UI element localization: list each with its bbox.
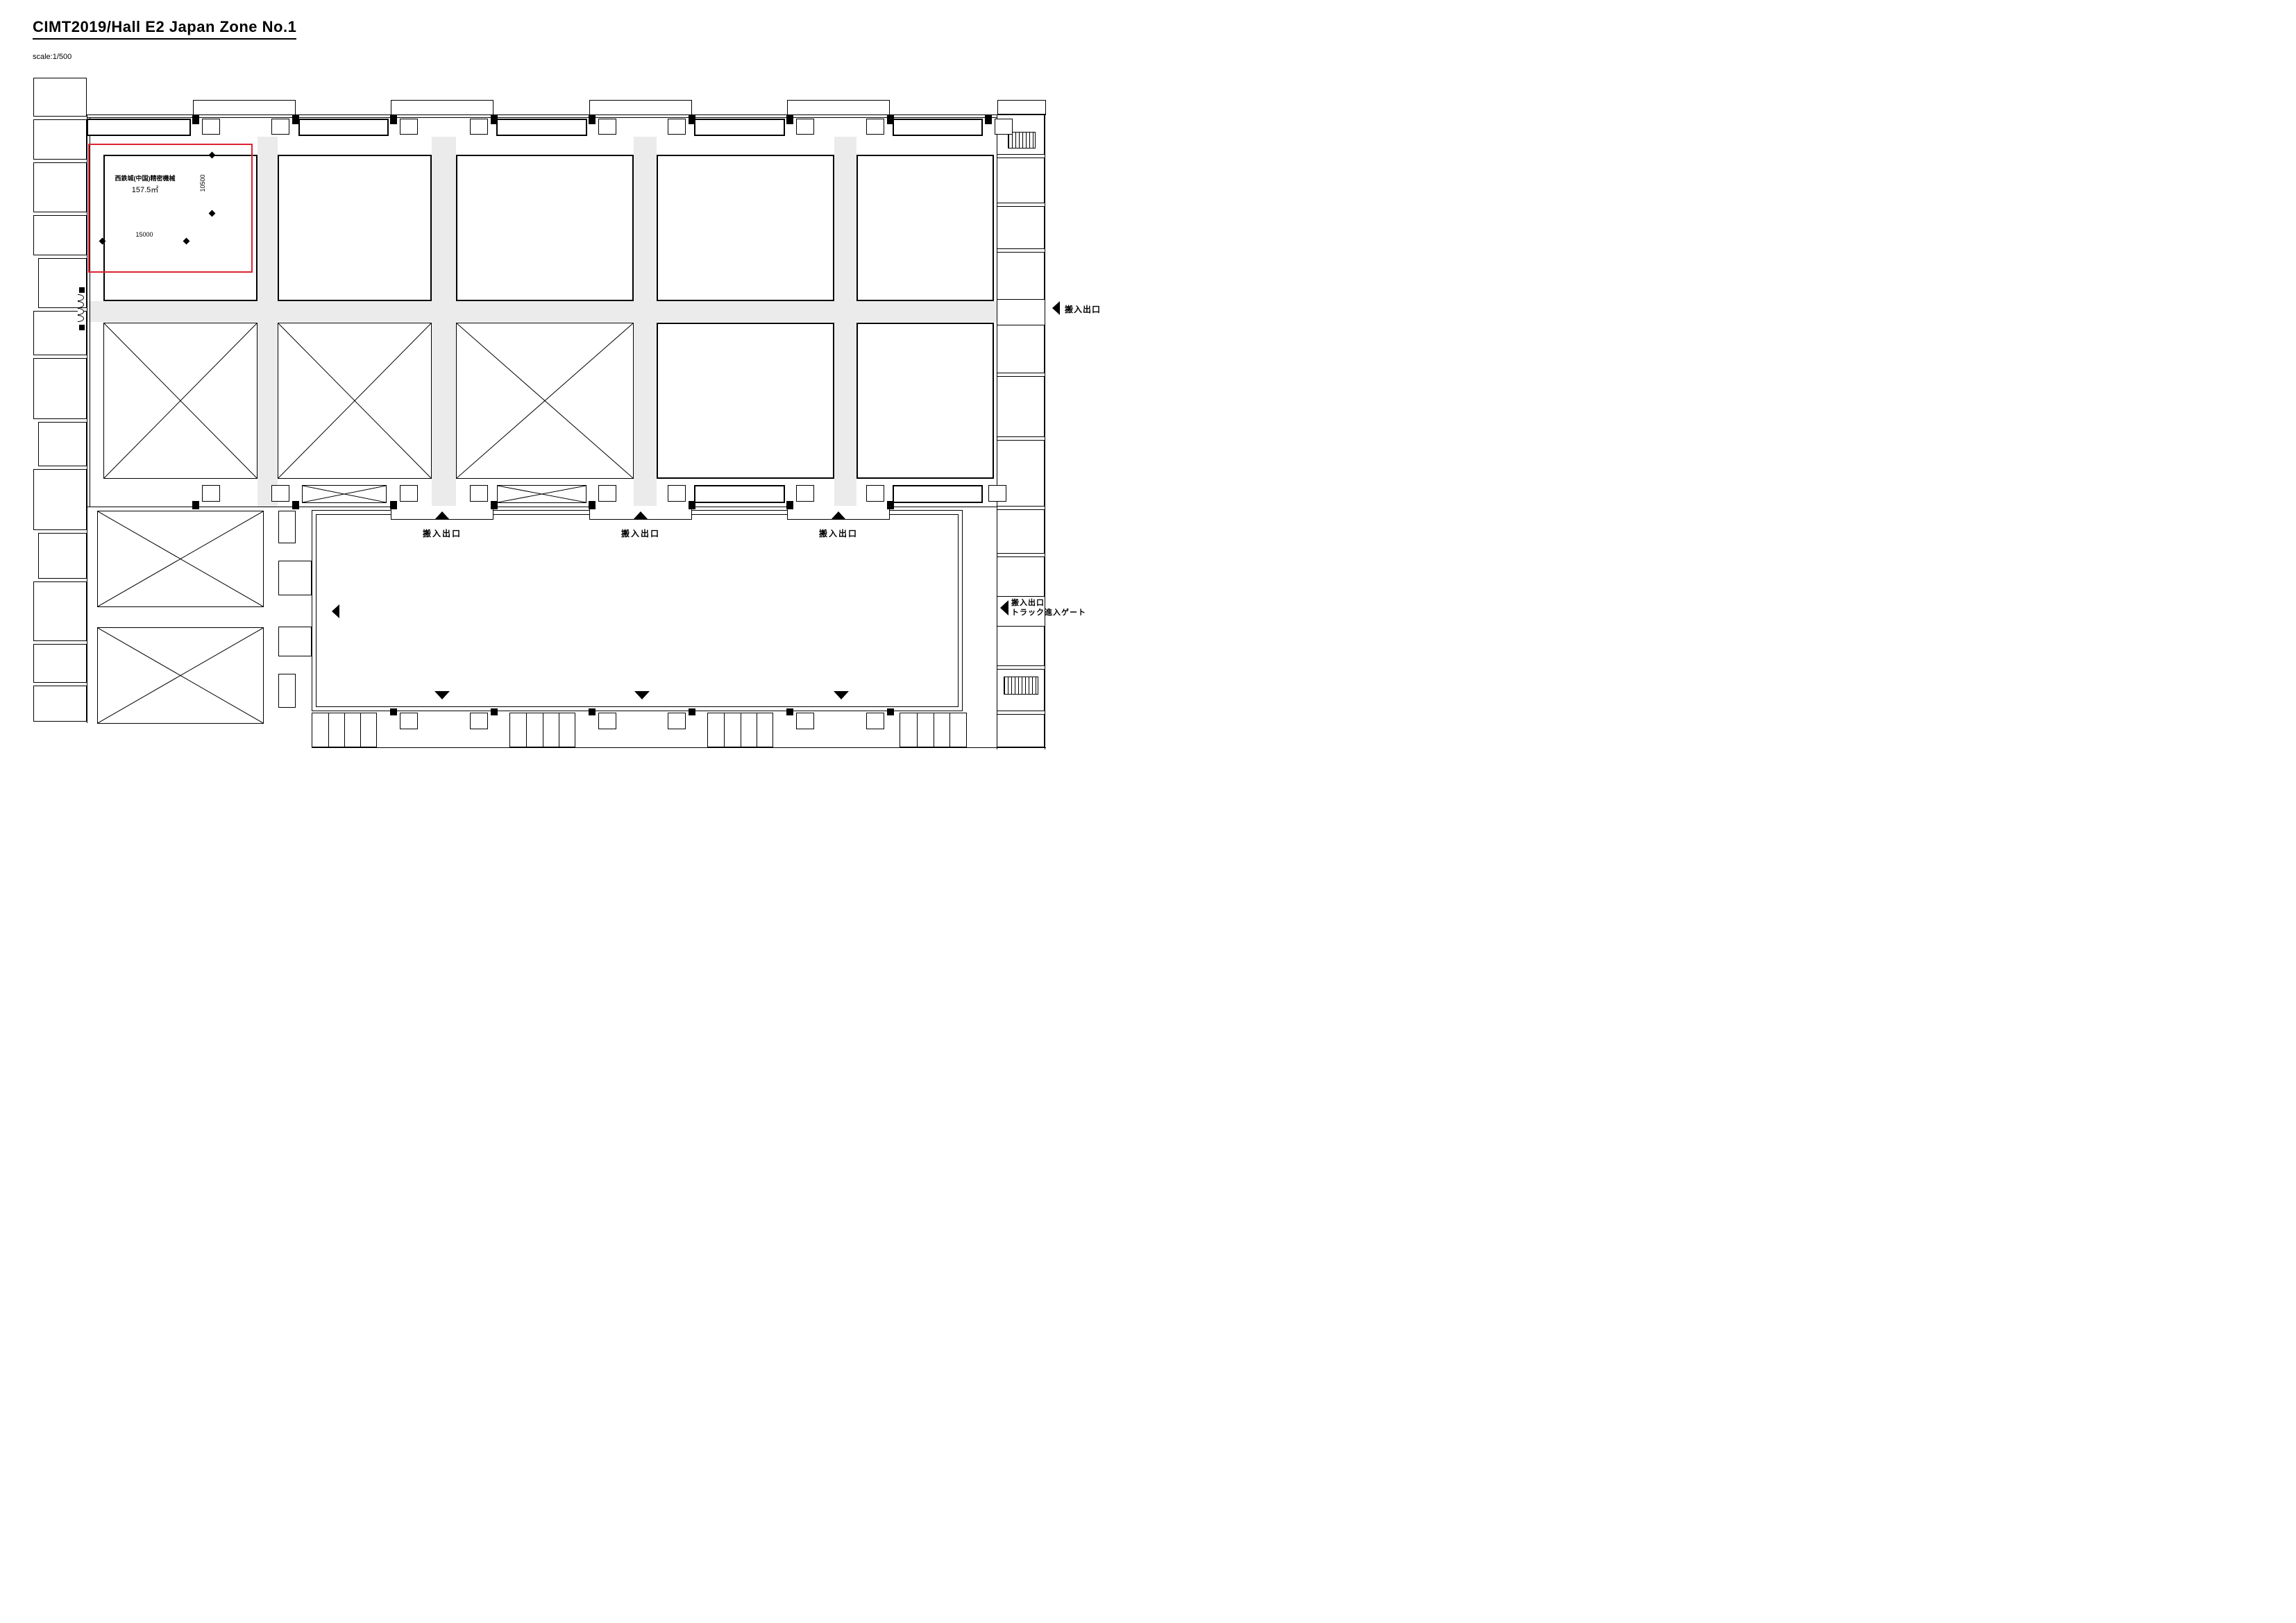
booth [456, 155, 634, 301]
door-leaf [866, 713, 884, 729]
reserved-area [456, 323, 634, 479]
door-leaf [271, 485, 289, 502]
pillar [985, 115, 992, 124]
truck-gate-line1: 搬入出口 [1011, 598, 1086, 608]
room-outline [997, 206, 1045, 249]
booth [694, 485, 785, 503]
room-outline [278, 627, 312, 656]
reserved-area [497, 485, 586, 503]
door-leaf [470, 713, 488, 729]
room-outline [997, 100, 1046, 114]
booth [87, 119, 191, 136]
floor-plan-canvas: 西鉄城(中国)精密機械 157.5㎡ 10500 15000 搬入出口 搬入出口… [0, 0, 1148, 812]
booth [694, 119, 785, 136]
service-room [312, 713, 377, 747]
booth [893, 119, 983, 136]
wall-line [87, 507, 87, 723]
booth [496, 119, 587, 136]
room-outline [589, 100, 692, 115]
room-outline [278, 561, 312, 595]
pillar [786, 115, 793, 124]
wall-line [87, 114, 87, 508]
room-outline [997, 158, 1045, 203]
pillar [589, 501, 596, 509]
entrance-label: 搬入出口 [819, 527, 858, 539]
pillar [192, 115, 199, 124]
truck-gate-label: 搬入出口 トラック進入ゲート [1011, 598, 1086, 618]
room-outline [997, 714, 1045, 747]
booth [298, 119, 389, 136]
door-leaf [271, 119, 289, 135]
room-outline [33, 78, 87, 117]
booth-area: 157.5㎡ [132, 184, 159, 195]
room-outline [997, 252, 1045, 300]
staircase-icon [1004, 677, 1038, 695]
door-leaf [470, 485, 488, 502]
door-leaf [400, 119, 418, 135]
door-leaf [470, 119, 488, 135]
entrance-arrow-down-icon [434, 691, 450, 699]
pillar [79, 287, 85, 293]
room-outline [787, 100, 890, 115]
entrance-arrow-up-icon [434, 511, 450, 520]
door-leaf [400, 485, 418, 502]
cross-mark-icon [303, 486, 386, 502]
wall-line [87, 117, 997, 118]
cross-mark-icon [98, 511, 263, 606]
pillar [491, 115, 498, 124]
door-leaf [598, 485, 616, 502]
pillar [292, 115, 299, 124]
room-outline [997, 509, 1045, 554]
room-outline [316, 514, 959, 707]
door-leaf [995, 119, 1013, 135]
pillar [887, 501, 894, 509]
booth-label: 西鉄城(中国)精密機械 157.5㎡ [104, 155, 186, 213]
service-room [509, 713, 575, 747]
reserved-area [97, 511, 264, 607]
door-leaf [668, 485, 686, 502]
room-outline [278, 674, 296, 708]
cross-mark-icon [98, 628, 263, 723]
aisle [87, 301, 997, 322]
dimension-width-label: 15000 [135, 231, 153, 238]
room-outline [33, 686, 87, 722]
room-outline [193, 100, 296, 115]
service-room [707, 713, 773, 747]
pillar [589, 708, 596, 715]
pillar [786, 708, 793, 715]
entrance-arrow-up-icon [831, 511, 846, 520]
pillar [887, 115, 894, 124]
reserved-area [97, 627, 264, 724]
booth [893, 485, 983, 503]
entrance-arrow-down-icon [834, 691, 849, 699]
wall-line [1045, 114, 1045, 749]
booth [278, 155, 432, 301]
entrance-label: 搬入出口 [423, 527, 462, 539]
entrance-label-right: 搬入出口 [1065, 303, 1101, 315]
door-leaf [796, 485, 814, 502]
door-leaf [866, 485, 884, 502]
room-outline [997, 626, 1045, 666]
exhibitor-name: 西鉄城(中国)精密機械 [115, 173, 176, 182]
booth [856, 155, 994, 301]
pillar [491, 501, 498, 509]
room-outline [997, 556, 1045, 597]
pillar [491, 708, 498, 715]
pillar [292, 501, 299, 509]
pillar [689, 708, 695, 715]
room-outline [278, 511, 296, 543]
room-outline [33, 581, 87, 641]
pillar [390, 115, 397, 124]
door-leaf [668, 119, 686, 135]
wall-line [312, 747, 1046, 748]
cross-mark-icon [104, 323, 257, 478]
pillar [689, 115, 695, 124]
entrance-arrow-left-icon [332, 604, 339, 618]
room-outline [33, 469, 87, 530]
pillar [192, 501, 199, 509]
booth [657, 155, 834, 301]
room-outline [38, 533, 87, 579]
pillar [589, 115, 596, 124]
door-leaf [796, 713, 814, 729]
pillar [390, 708, 397, 715]
room-outline [33, 644, 87, 683]
room-outline [33, 119, 87, 160]
service-room [900, 713, 967, 747]
entrance-arrow-left-icon [1052, 301, 1060, 315]
pillar [79, 325, 85, 330]
room-outline [997, 325, 1045, 373]
booth [856, 323, 994, 479]
door-leaf [400, 713, 418, 729]
door-leaf [202, 485, 220, 502]
door-leaf [988, 485, 1006, 502]
door-leaf [668, 713, 686, 729]
cross-mark-icon [278, 323, 431, 478]
reserved-area [278, 323, 432, 479]
pillar [887, 708, 894, 715]
truck-gate-line2: トラック進入ゲート [1011, 608, 1086, 618]
reserved-area [103, 323, 258, 479]
room-outline [33, 162, 87, 212]
door-leaf [202, 119, 220, 135]
door-leaf [796, 119, 814, 135]
cross-mark-icon [457, 323, 633, 478]
booth [657, 323, 834, 479]
floor-plan-page: CIMT2019/Hall E2 Japan Zone No.1 scale:1… [0, 0, 1148, 812]
room-outline [391, 100, 493, 115]
reserved-area [302, 485, 387, 503]
room-outline [997, 376, 1045, 437]
room-outline [33, 358, 87, 419]
pillar [390, 501, 397, 509]
entrance-arrow-up-icon [633, 511, 648, 520]
room-outline [38, 422, 87, 466]
entrance-label: 搬入出口 [621, 527, 660, 539]
cross-mark-icon [498, 486, 586, 502]
door-leaf [598, 119, 616, 135]
entrance-arrow-down-icon [634, 691, 650, 699]
pillar [689, 501, 695, 509]
door-leaf [598, 713, 616, 729]
door-leaf [866, 119, 884, 135]
truck-gate-arrow-icon [1000, 600, 1008, 615]
pillar [786, 501, 793, 509]
room-outline [33, 215, 87, 255]
dimension-height-label: 10500 [199, 174, 206, 192]
